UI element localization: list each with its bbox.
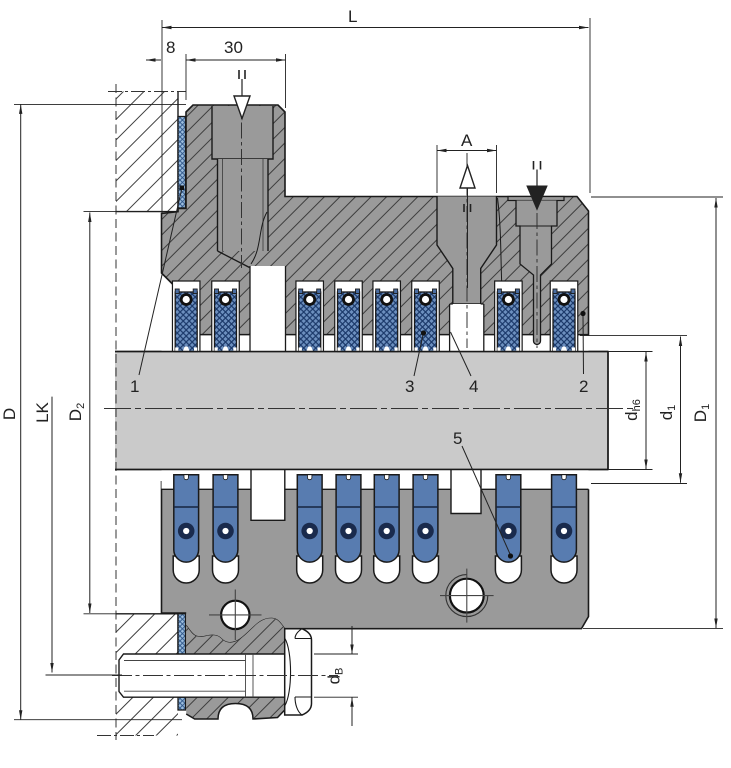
svg-text:3: 3: [405, 377, 414, 396]
svg-text:d1: d1: [657, 405, 678, 421]
svg-text:D1: D1: [691, 404, 712, 422]
svg-text:2: 2: [579, 377, 588, 396]
svg-text:30: 30: [224, 38, 243, 57]
svg-text:1: 1: [130, 377, 139, 396]
svg-text:D2: D2: [66, 403, 87, 421]
svg-text:dh6: dh6: [622, 399, 643, 421]
svg-text:A: A: [461, 131, 473, 150]
svg-text:5: 5: [453, 429, 462, 448]
svg-text:LK: LK: [33, 401, 52, 422]
svg-text:D: D: [0, 408, 19, 420]
svg-text:dB: dB: [325, 668, 346, 685]
svg-text:4: 4: [469, 377, 478, 396]
svg-text:8: 8: [166, 38, 175, 57]
svg-text:L: L: [348, 7, 357, 26]
